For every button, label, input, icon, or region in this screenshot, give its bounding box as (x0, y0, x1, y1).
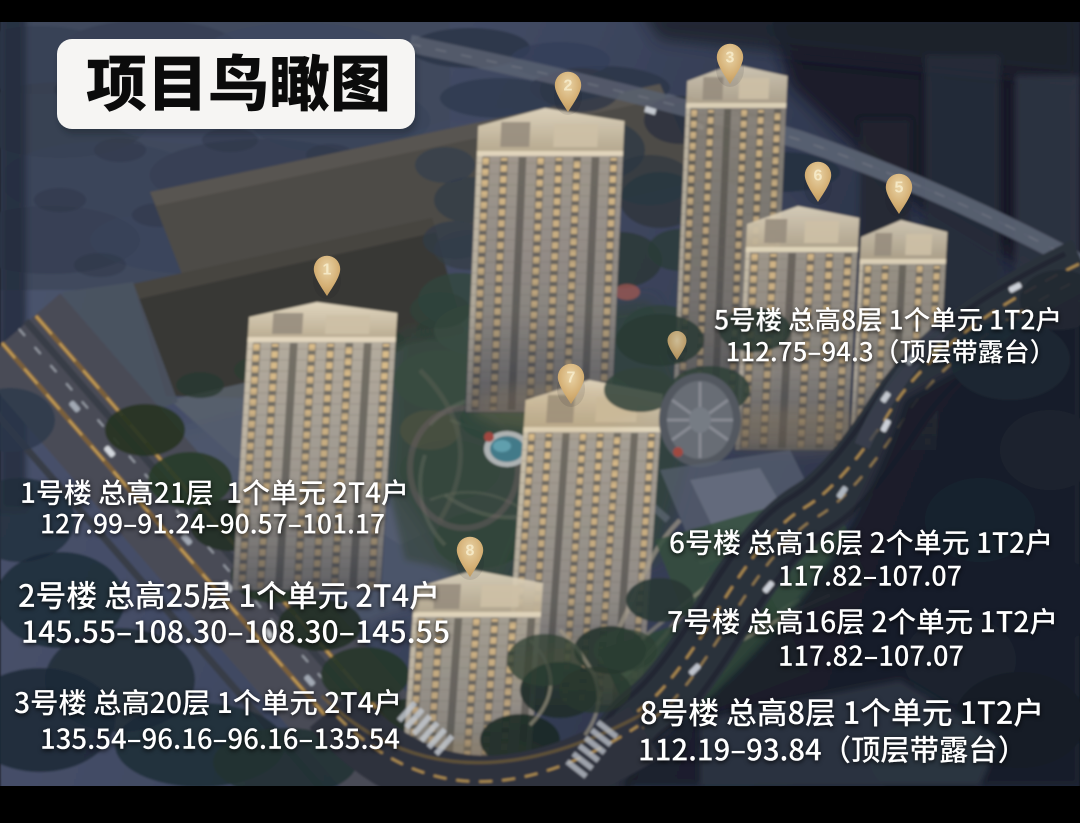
svg-text:1: 1 (323, 262, 332, 279)
svg-text:7: 7 (567, 370, 576, 387)
svg-text:5: 5 (895, 180, 904, 197)
svg-text:2: 2 (564, 78, 573, 95)
svg-text:3: 3 (726, 50, 735, 67)
svg-text:8: 8 (466, 543, 475, 560)
svg-text:6: 6 (814, 168, 823, 185)
